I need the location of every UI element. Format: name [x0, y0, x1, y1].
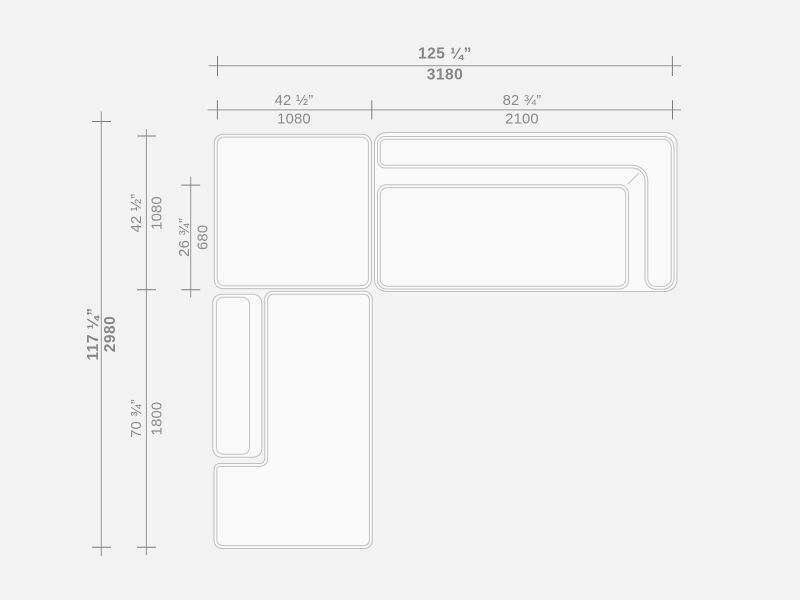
svg-text:3180: 3180 — [427, 66, 463, 83]
svg-text:82 ¾”: 82 ¾” — [503, 93, 542, 109]
svg-text:2980: 2980 — [102, 316, 119, 352]
svg-text:2100: 2100 — [505, 112, 539, 128]
svg-text:1080: 1080 — [277, 112, 311, 128]
svg-text:70 ¾”: 70 ¾” — [129, 399, 145, 438]
svg-text:1080: 1080 — [150, 196, 166, 230]
svg-text:117 ¼”: 117 ¼” — [85, 308, 102, 361]
svg-text:26 ¾”: 26 ¾” — [177, 218, 193, 257]
svg-text:42 ½”: 42 ½” — [275, 93, 314, 109]
svg-text:680: 680 — [195, 225, 211, 250]
svg-text:1800: 1800 — [150, 402, 166, 436]
svg-text:42 ½”: 42 ½” — [129, 194, 145, 233]
svg-text:125 ¼”: 125 ¼” — [418, 45, 472, 62]
